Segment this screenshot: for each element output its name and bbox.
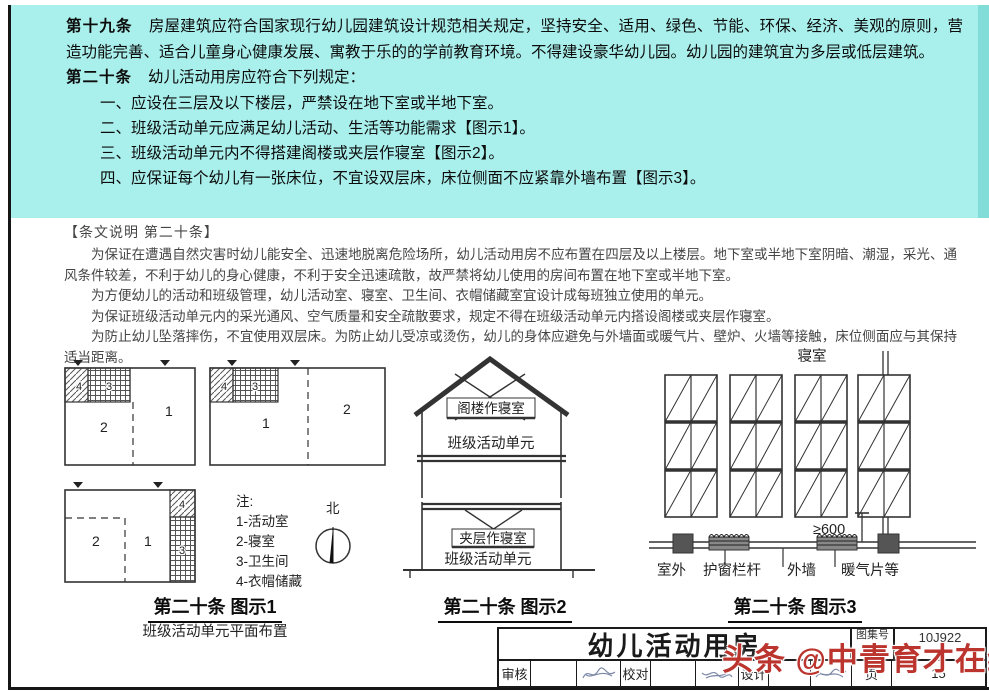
article-20-item-3: 三、班级活动单元内不得搭建阁楼或夹层作寝室【图示2】。 [66,141,963,166]
commentary-paragraph: 为保证班级活动单元内的采光通风、空气质量和安全疏散要求，规定不得在班级活动单元内… [64,307,957,328]
svg-text:1: 1 [262,415,270,431]
figure-3-caption: 第二十条 图示3 [705,593,885,623]
bed-icon [665,375,717,517]
bed-icons [665,375,910,517]
svg-text:4: 4 [179,499,185,511]
article-19: 第十九条房屋建筑应符合国家现行幼儿园建筑设计规范相关规定，坚持安全、适用、绿色、… [66,14,963,65]
figure-1-plan-b: 4 3 1 2 [210,360,385,465]
figure-2-mezzanine-section: 夹层作寝室 班级活动单元 [403,502,595,578]
article-20: 第二十条幼儿活动用房应符合下列规定： [66,65,963,91]
commentary-paragraph: 为保证在遭遇自然灾害时幼儿能安全、迅速地脱离危险场所，幼儿活动用房不应布置在四层… [64,245,957,286]
figure-2-sections: 阁楼作寝室 班级活动单元 夹层作寝室 班级活动单元 [395,352,625,596]
figure-3-bed-layout: 寝室 [645,345,980,595]
figure-1-plan-c: 2 1 4 3 [65,482,195,582]
commentary-heading: 【条文说明 第二十条】 [64,222,957,242]
regulation-section: 第十九条房屋建筑应符合国家现行幼儿园建筑设计规范相关规定，坚持安全、适用、绿色、… [11,5,989,218]
reviewer-label: 审核 [499,661,530,686]
article-19-text: 房屋建筑应符合国家现行幼儿园建筑设计规范相关规定，坚持安全、适用、绿色、节能、环… [66,18,963,61]
svg-text:夹层作寝室: 夹层作寝室 [459,530,527,546]
svg-text:3: 3 [106,381,112,393]
bed-icon [858,375,910,517]
svg-text:班级活动单元: 班级活动单元 [448,435,535,452]
svg-text:1: 1 [165,403,173,419]
figure-1-legend: 注: 1-活动室 2-寝室 3-卫生间 4-衣帽储藏 [236,494,303,589]
figure-1-plan-a: 4 3 2 1 [65,360,195,465]
figure-3-bedroom-label: 寝室 [798,347,827,365]
article-20-label: 第二十条 [66,69,132,86]
figure-1-caption: 第二十条 图示1 [105,593,325,623]
signature-scribble-icon [580,665,618,683]
svg-text:班级活动单元: 班级活动单元 [445,551,532,568]
figure-2-attic-section: 阁楼作寝室 班级活动单元 [415,359,568,498]
figure-3-labels: 室外 护窗栏杆 外墙 暖气片等 [657,561,899,579]
checker-label: 校对 [620,661,650,686]
commentary-paragraph: 为方便幼儿的活动和班级管理，幼儿活动室、寝室、卫生间、衣帽储藏室宜设计成每班独立… [64,286,957,307]
bed-icon [795,375,847,517]
article-20-text: 幼儿活动用房应符合下列规定： [148,69,365,86]
svg-text:2: 2 [343,401,351,417]
svg-text:北: 北 [326,501,340,516]
svg-text:1-活动室: 1-活动室 [236,513,289,529]
north-compass-icon: 北 [316,501,350,563]
standard-page: 第十九条房屋建筑应符合国家现行幼儿园建筑设计规范相关规定，坚持安全、适用、绿色、… [0,0,989,692]
checker-name [650,661,695,686]
article-20-item-4: 四、应保证每个幼儿有一张床位，不宜设双层床，床位侧面不应紧靠外墙布置【图示3】。 [66,166,963,191]
figure-1-plans: 4 3 2 1 4 3 1 2 2 1 4 [40,350,390,596]
watermark-text: 头条 @中青育才在线 [722,634,989,679]
article-20-item-2: 二、班级活动单元应满足幼儿活动、生活等功能需求【图示1】。 [66,116,963,141]
svg-text:2: 2 [92,533,100,549]
svg-text:护窗栏杆: 护窗栏杆 [703,561,761,579]
svg-text:4: 4 [221,381,227,393]
radiator-icon [709,535,749,551]
svg-text:3-卫生间: 3-卫生间 [236,554,289,569]
svg-text:阁楼作寝室: 阁楼作寝室 [457,400,525,416]
figure-1-subcaption: 班级活动单元平面布置 [95,620,335,641]
bed-icon [730,375,782,517]
svg-text:3: 3 [179,545,185,557]
svg-text:2: 2 [100,419,108,435]
svg-text:2-寝室: 2-寝室 [236,533,275,549]
reviewer-name [530,661,576,686]
svg-text:3: 3 [252,381,258,393]
cyan-edge-shade [978,5,989,218]
svg-text:室外: 室外 [657,562,686,579]
svg-text:注:: 注: [236,494,253,509]
article-19-label: 第十九条 [66,18,133,35]
svg-text:外墙: 外墙 [787,562,816,579]
reviewer-signature [576,661,620,686]
radiator-icon [817,535,857,551]
svg-text:暖气片等: 暖气片等 [841,561,899,579]
svg-text:4: 4 [76,381,82,393]
svg-text:1: 1 [144,533,152,549]
svg-text:4-衣帽储藏: 4-衣帽储藏 [236,574,303,589]
article-20-item-1: 一、应设在三层及以下楼层，严禁设在地下室或半地下室。 [66,91,963,116]
figure-2-caption: 第二十条 图示2 [415,593,595,623]
